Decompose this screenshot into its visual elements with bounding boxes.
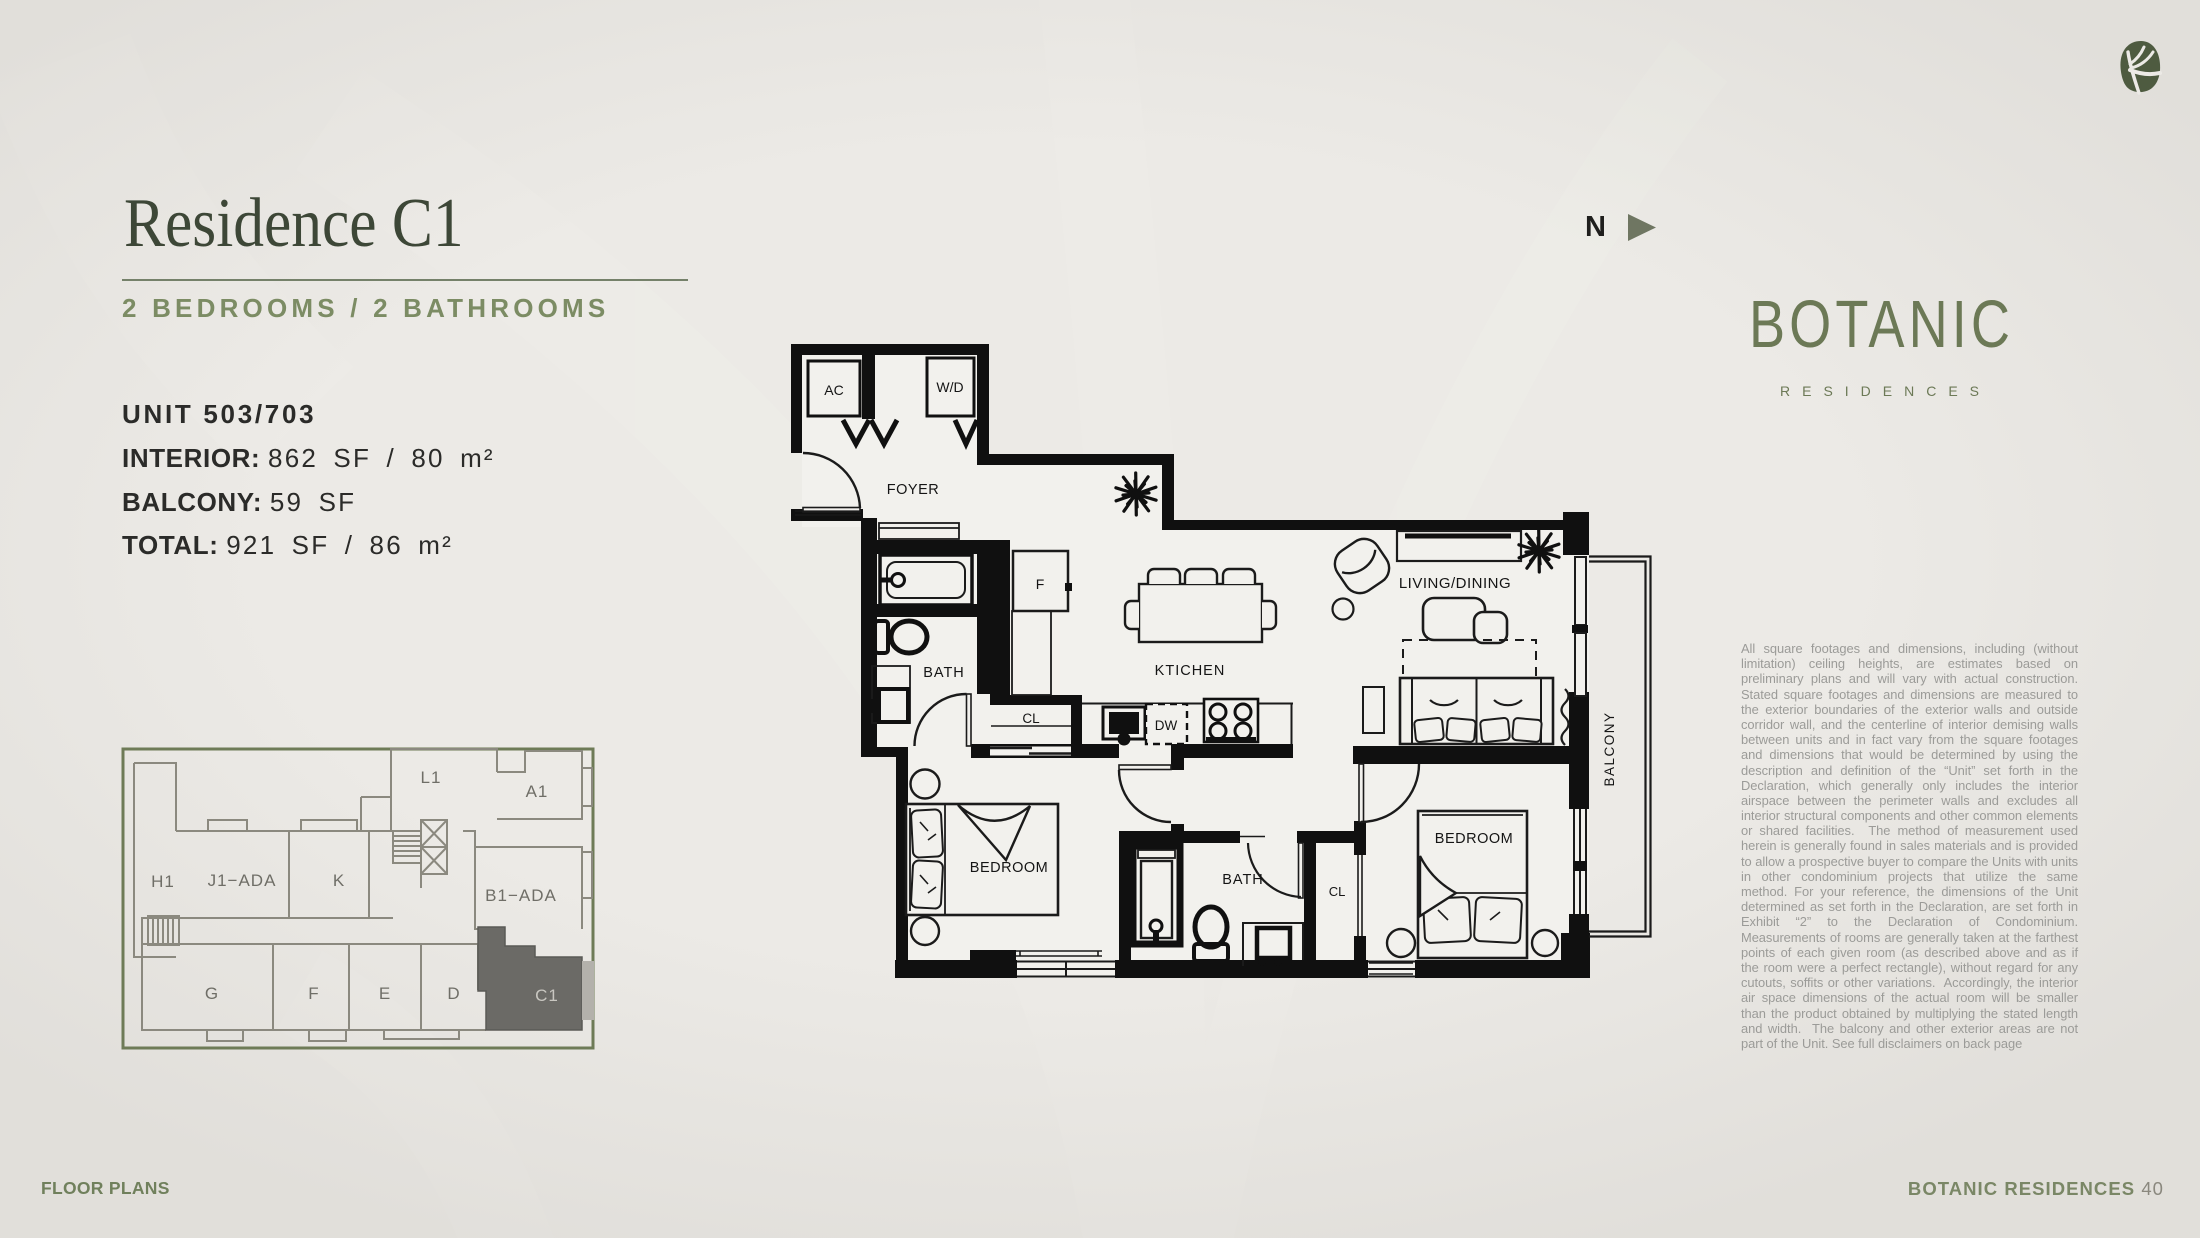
svg-text:AC: AC xyxy=(824,382,843,398)
svg-text:J1−ADA: J1−ADA xyxy=(208,871,277,890)
svg-text:BATH: BATH xyxy=(923,665,965,681)
svg-text:DW: DW xyxy=(1155,718,1178,733)
svg-text:B1−ADA: B1−ADA xyxy=(485,886,557,905)
svg-text:BOTANIC: BOTANIC xyxy=(1749,287,2014,362)
svg-text:K: K xyxy=(333,871,345,890)
svg-text:BATH: BATH xyxy=(1222,872,1264,888)
svg-text:BEDROOM: BEDROOM xyxy=(970,860,1048,876)
svg-text:A1: A1 xyxy=(526,782,549,801)
svg-text:D: D xyxy=(447,984,460,1003)
svg-text:G: G xyxy=(205,984,219,1003)
svg-text:KTICHEN: KTICHEN xyxy=(1155,663,1226,679)
svg-text:LIVING/DINING: LIVING/DINING xyxy=(1399,575,1511,592)
svg-text:BALCONY: BALCONY xyxy=(1602,711,1617,786)
svg-text:H1: H1 xyxy=(151,872,175,891)
svg-text:C1: C1 xyxy=(535,986,559,1005)
svg-text:FOYER: FOYER xyxy=(887,482,939,498)
svg-text:N: N xyxy=(1585,211,1606,243)
svg-text:W/D: W/D xyxy=(936,379,963,395)
svg-text:F: F xyxy=(308,984,319,1003)
svg-text:CL: CL xyxy=(1022,711,1040,726)
svg-text:F: F xyxy=(1036,576,1045,592)
svg-text:E: E xyxy=(379,984,391,1003)
svg-text:RESIDENCES: RESIDENCES xyxy=(1780,383,1991,399)
svg-text:CL: CL xyxy=(1329,884,1346,899)
svg-text:BEDROOM: BEDROOM xyxy=(1435,831,1513,847)
svg-text:L1: L1 xyxy=(421,768,442,787)
